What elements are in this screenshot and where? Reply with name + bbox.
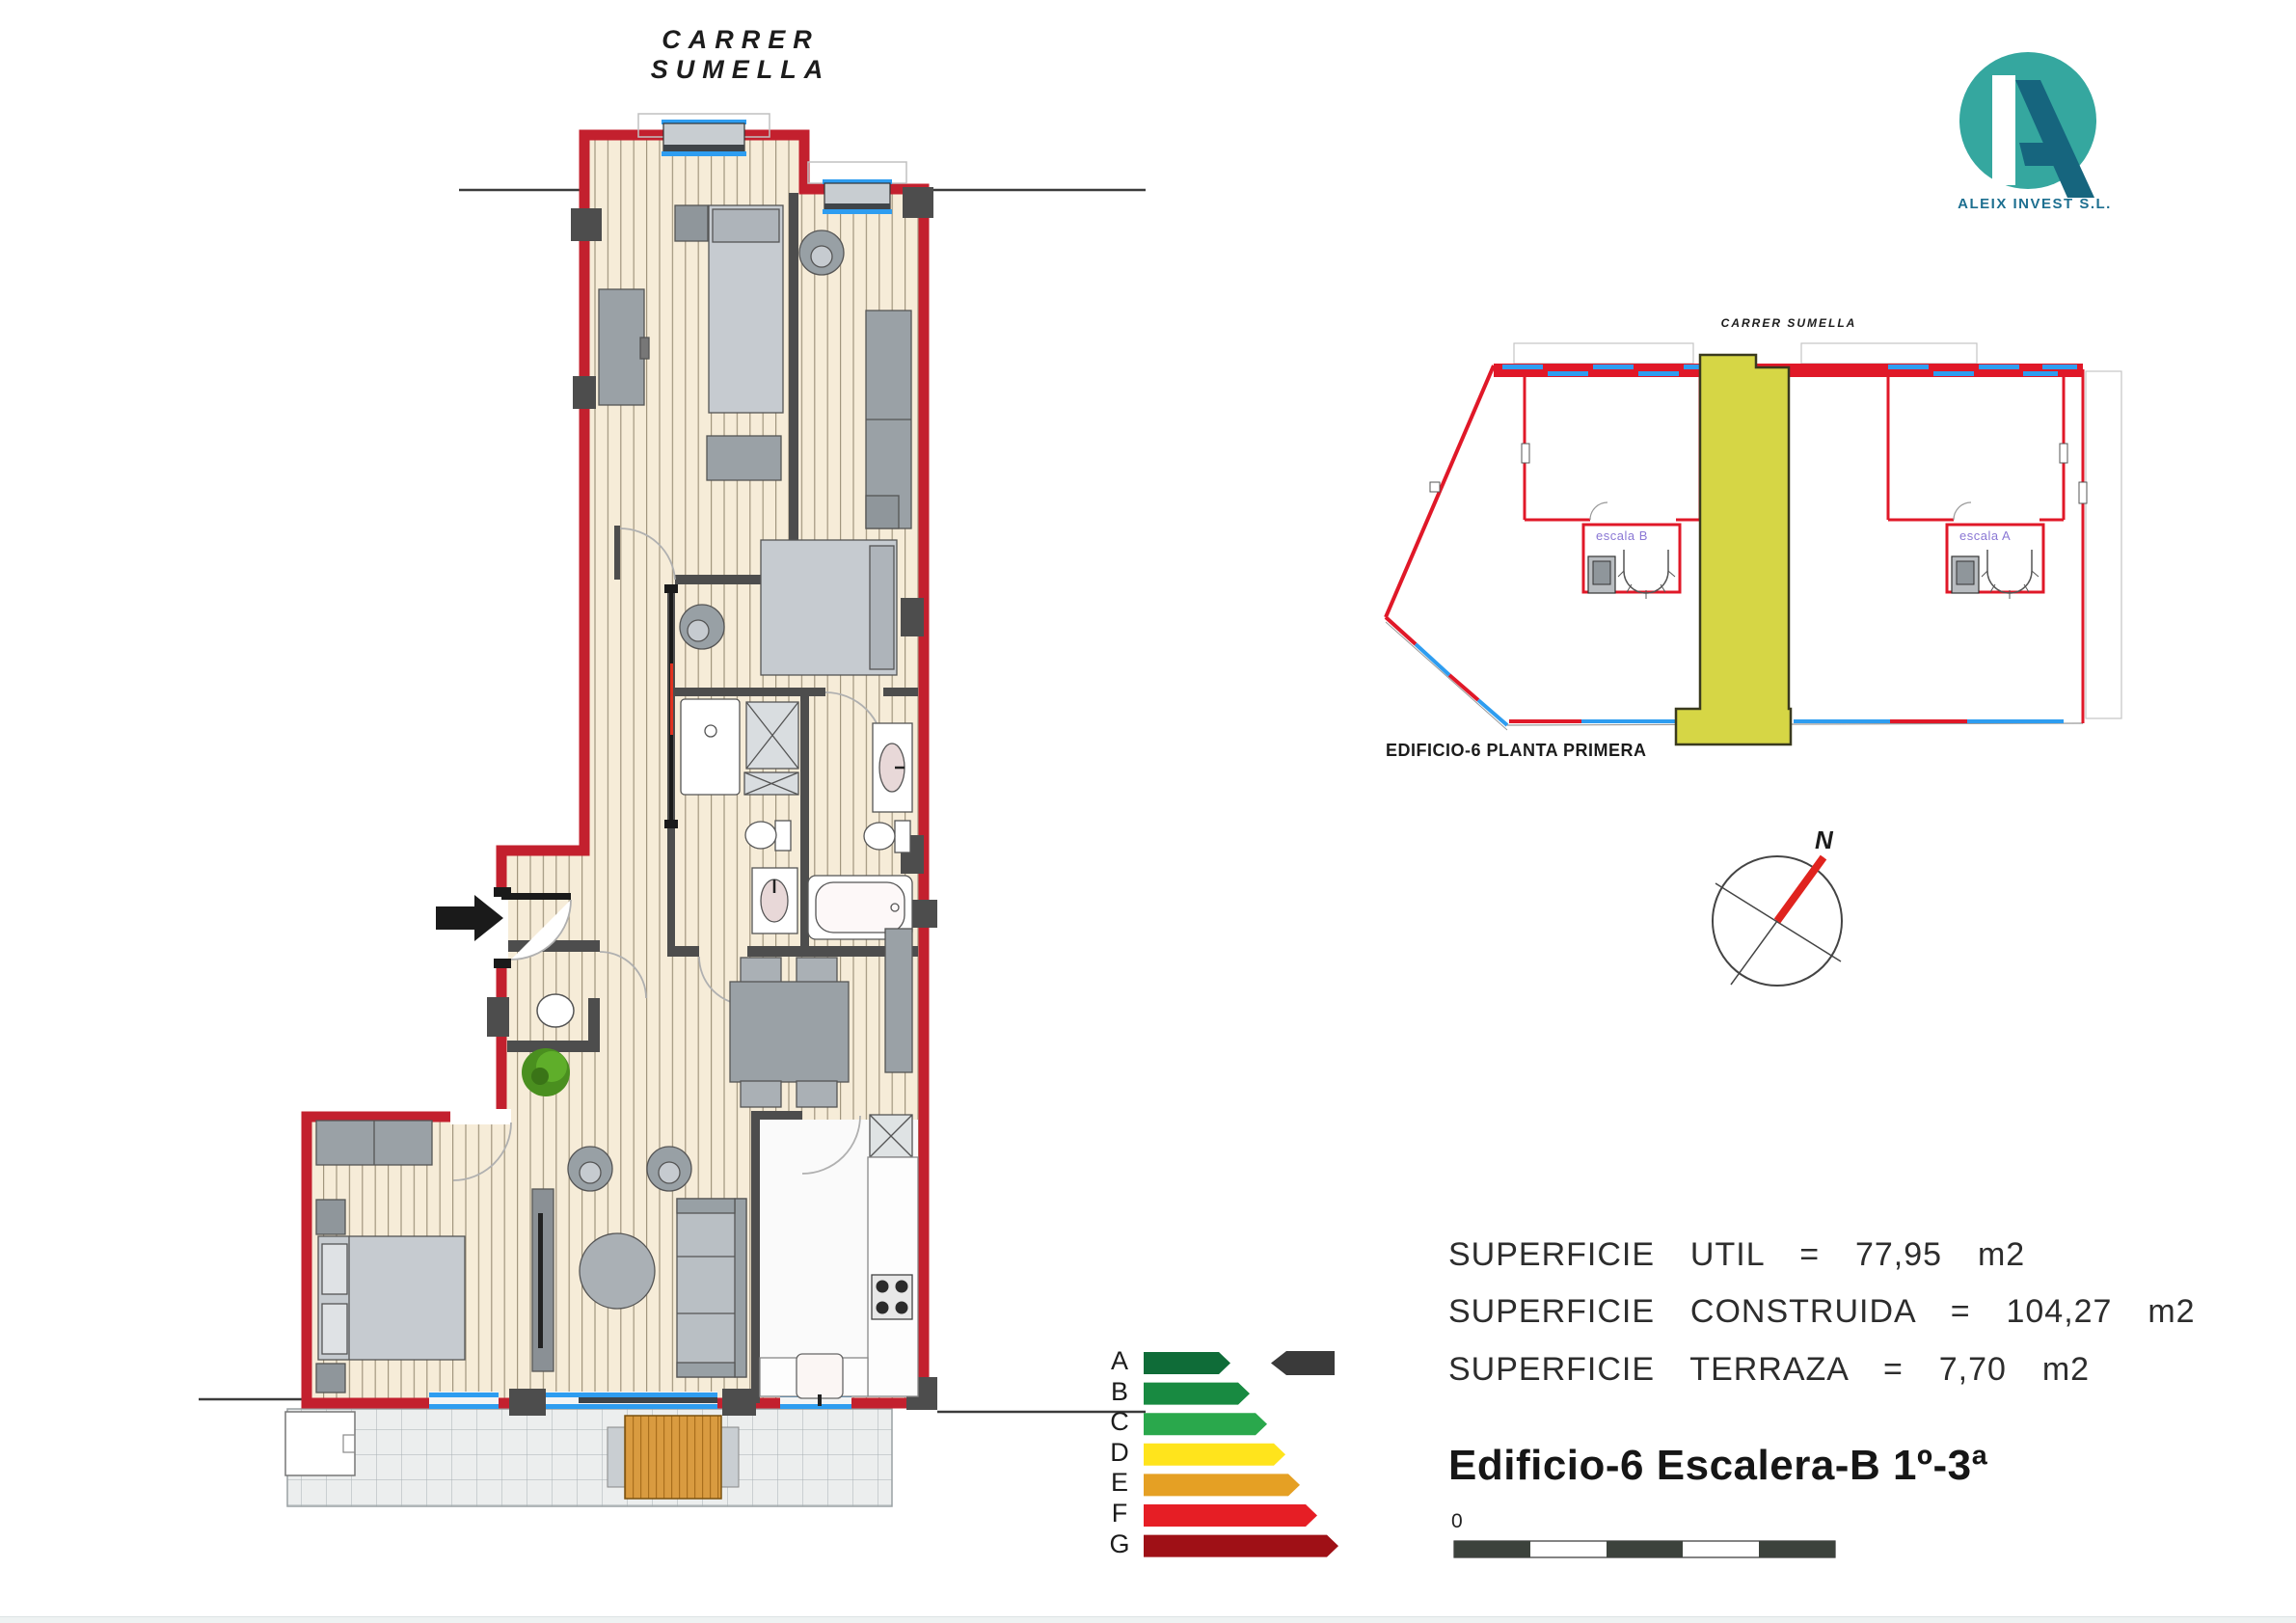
nightstand: [675, 205, 708, 241]
energy-arrow-A: [1144, 1352, 1230, 1374]
pillow: [870, 546, 894, 669]
energy-arrow-E: [1144, 1474, 1300, 1496]
energy-arrow-B: [1144, 1383, 1250, 1405]
wc-basin: [537, 994, 574, 1027]
stove: [872, 1275, 912, 1319]
nightstand: [316, 1200, 345, 1234]
energy-letter-e: E: [1107, 1468, 1132, 1499]
compass-north-label: N: [1815, 825, 1833, 855]
energy-arrow-G: [1144, 1535, 1338, 1557]
scan-edge-line: [0, 1616, 2296, 1623]
energy-arrow-F: [1144, 1504, 1317, 1527]
energy-letter-c: C: [1107, 1407, 1132, 1438]
unit-title: Edificio-6 Escalera-B 1º-3ª: [1448, 1442, 1987, 1490]
dresser: [707, 436, 781, 480]
pillow: [322, 1244, 347, 1294]
superficie-terraza: SUPERFICIE TERRAZA = 7,70 m2: [1448, 1351, 2090, 1389]
energy-letter-b: B: [1107, 1377, 1132, 1408]
energy-letter-d: D: [1107, 1438, 1132, 1469]
desk: [599, 289, 644, 405]
terrace-chair: [608, 1427, 625, 1487]
toilet: [775, 821, 791, 851]
energy-letter-f: F: [1107, 1499, 1132, 1529]
floorplan-sheet: CARRER SUMELLA ALEIX INVEST S.L. CARRER …: [0, 0, 2296, 1623]
logo-letter-i: [1992, 75, 2015, 185]
entry-arrow-icon: [436, 895, 503, 941]
superficie-util: SUPERFICIE UTIL = 77,95 m2: [1448, 1236, 2025, 1274]
pillow: [322, 1304, 347, 1354]
terrace: [285, 1409, 892, 1506]
sink: [797, 1354, 843, 1398]
scale-bar-zero: 0: [1451, 1510, 1463, 1533]
terrace-chair: [721, 1427, 739, 1487]
highlighted-unit: [1676, 355, 1791, 744]
scale-bar: [1454, 1541, 1835, 1557]
compass-needle: [1777, 857, 1823, 921]
nightstand: [866, 496, 899, 528]
street-label: CARRER SUMELLA: [577, 25, 905, 85]
energy-letter-g: G: [1107, 1529, 1132, 1560]
siteplan-caption: EDIFICIO-6 PLANTA PRIMERA: [1386, 741, 1647, 761]
nightstand: [316, 1364, 345, 1393]
stair-a: [1952, 502, 2039, 599]
terrace-table-wood: [625, 1416, 721, 1499]
cabinet: [885, 929, 912, 1072]
energy-indicator-arrow: [1271, 1351, 1335, 1375]
round-table: [580, 1233, 655, 1309]
logo-company-name: ALEIX INVEST S.L.: [1938, 196, 2131, 212]
toilet: [895, 821, 910, 852]
chair: [741, 1081, 781, 1107]
chair: [797, 958, 837, 983]
energy-arrow-D: [1144, 1444, 1285, 1466]
chair: [797, 1081, 837, 1107]
site-plan: [1386, 343, 2121, 744]
terrace-table-white: [285, 1412, 355, 1475]
siteplan-street-label: CARRER SUMELLA: [1678, 316, 1900, 330]
energy-grade-letters: A B C D E F G: [1107, 1346, 1132, 1559]
floor-plan: [199, 114, 1146, 1506]
plant: [522, 1048, 570, 1096]
energy-arrow-C: [1144, 1413, 1267, 1435]
superficie-construida: SUPERFICIE CONSTRUIDA = 104,27 m2: [1448, 1293, 2196, 1331]
siteplan-stair-a-label: escala A: [1959, 528, 2011, 543]
stair-b: [1588, 502, 1675, 599]
toilet-bowl: [864, 823, 895, 850]
dining-table: [730, 982, 849, 1082]
chair: [741, 958, 781, 983]
energy-rating-chart: [1144, 1351, 1338, 1557]
logo-mark: [1959, 52, 2096, 198]
compass: [1713, 856, 1842, 986]
siteplan-stair-b-label: escala B: [1596, 528, 1648, 543]
shower: [681, 699, 740, 795]
toilet-bowl: [745, 822, 776, 849]
energy-letter-a: A: [1107, 1346, 1132, 1377]
pillow: [713, 209, 779, 242]
